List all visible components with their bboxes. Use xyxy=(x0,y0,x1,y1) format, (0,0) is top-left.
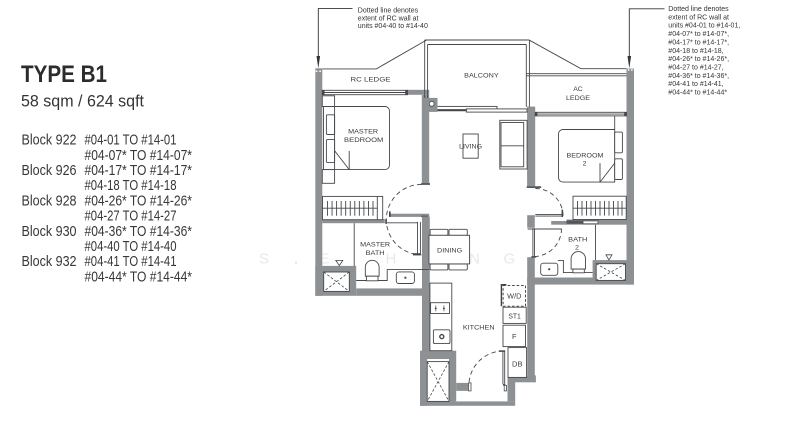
svg-text:LEDGE: LEDGE xyxy=(566,95,590,102)
svg-text:G: G xyxy=(504,251,516,268)
svg-text:Dotted line denotes: Dotted line denotes xyxy=(358,8,419,15)
svg-text:ST1: ST1 xyxy=(508,312,521,321)
svg-text:#04-17* to #14-17*,: #04-17* to #14-17*, xyxy=(668,39,729,46)
svg-text:#04-18 to #14-18,: #04-18 to #14-18, xyxy=(668,48,723,55)
svg-text:N: N xyxy=(469,251,480,268)
svg-text:58 sqm / 624 sqft: 58 sqm / 624 sqft xyxy=(21,92,144,111)
svg-text:Block 928: Block 928 xyxy=(22,192,77,209)
svg-text:BATH: BATH xyxy=(366,250,385,257)
svg-text:units #04-40 to #14-40: units #04-40 to #14-40 xyxy=(358,23,428,30)
svg-text:AC: AC xyxy=(573,86,583,93)
svg-text:BEDROOM: BEDROOM xyxy=(344,137,384,144)
svg-text:LIVING: LIVING xyxy=(459,144,482,151)
svg-text:#04-44* TO #14-44*: #04-44* TO #14-44* xyxy=(85,268,193,285)
svg-text:#04-07* to #14-07*,: #04-07* to #14-07*, xyxy=(668,31,729,38)
svg-text:#04-26* to #14-26*,: #04-26* to #14-26*, xyxy=(668,56,729,63)
svg-text:MASTER: MASTER xyxy=(360,242,390,249)
svg-text:BEDROOM: BEDROOM xyxy=(567,152,604,159)
svg-text:#04-36* to #14-36*,: #04-36* to #14-36*, xyxy=(668,73,729,80)
svg-text:Block 926: Block 926 xyxy=(22,162,77,179)
svg-text:2: 2 xyxy=(575,245,579,252)
svg-text:#04-41 to #14-41,: #04-41 to #14-41, xyxy=(668,81,723,88)
svg-text:Block 922: Block 922 xyxy=(22,132,77,149)
svg-text:F: F xyxy=(512,332,517,341)
svg-text:#04-44* to #14-44*: #04-44* to #14-44* xyxy=(668,90,727,97)
svg-text:RC LEDGE: RC LEDGE xyxy=(351,77,392,84)
svg-text:units #04-01 to #14-01,: units #04-01 to #14-01, xyxy=(668,23,740,30)
svg-text:extent of RC wall at: extent of RC wall at xyxy=(358,15,419,22)
svg-text:TYPE B1: TYPE B1 xyxy=(21,61,107,88)
svg-text:2: 2 xyxy=(583,161,587,168)
svg-text:W/D: W/D xyxy=(507,292,521,301)
svg-text:DINING: DINING xyxy=(437,247,462,254)
svg-text:Dotted line denotes: Dotted line denotes xyxy=(668,6,729,13)
svg-text:DB: DB xyxy=(512,360,523,369)
svg-text:extent of RC wall at: extent of RC wall at xyxy=(668,14,729,21)
svg-text:Block 932: Block 932 xyxy=(22,253,77,270)
svg-text:#04-27 to #14-27,: #04-27 to #14-27, xyxy=(668,65,723,72)
svg-text:Block 930: Block 930 xyxy=(22,223,77,240)
svg-text:S: S xyxy=(259,251,269,268)
svg-text:BATH: BATH xyxy=(568,236,587,243)
svg-text:H: H xyxy=(386,251,397,268)
svg-text:KITCHEN: KITCHEN xyxy=(463,325,495,332)
svg-text:MASTER: MASTER xyxy=(348,128,378,135)
svg-text:BALCONY: BALCONY xyxy=(464,73,499,80)
